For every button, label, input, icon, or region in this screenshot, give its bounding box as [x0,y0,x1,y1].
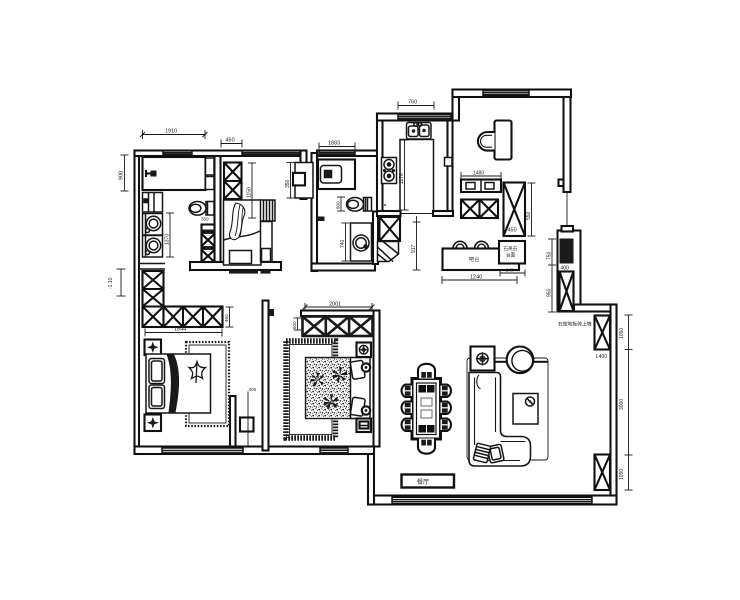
svg-text:1883: 1883 [328,141,340,147]
svg-text:1050: 1050 [619,328,625,339]
svg-text:450: 450 [508,228,517,234]
svg-text:1240: 1240 [470,275,482,281]
svg-text:369: 369 [201,217,209,222]
svg-text:台面: 台面 [506,252,516,259]
svg-text:800: 800 [336,201,341,209]
svg-text:400: 400 [249,387,257,392]
svg-text:1176: 1176 [399,173,405,184]
svg-text:3000: 3000 [619,399,625,410]
svg-text:350: 350 [285,179,291,188]
svg-text:餐厅: 餐厅 [417,478,429,486]
svg-text:吧台: 吧台 [469,255,479,263]
svg-text:460: 460 [226,138,235,144]
svg-text:1150: 1150 [247,187,253,198]
svg-text:石塑地板砖上墙: 石塑地板砖上墙 [558,321,592,328]
svg-text:950: 950 [547,288,553,297]
svg-text:2001: 2001 [329,302,341,308]
svg-text:240: 240 [506,268,514,273]
svg-text:1050: 1050 [619,469,625,480]
svg-text:550: 550 [526,211,532,220]
svg-text:1370: 1370 [165,234,171,245]
svg-text:750: 750 [547,251,553,260]
svg-text:-1.10: -1.10 [108,277,114,289]
svg-text:1844: 1844 [174,327,186,333]
svg-text:917: 917 [411,244,417,253]
svg-text:L400: L400 [596,354,607,360]
svg-text:740: 740 [340,239,346,248]
svg-text:760: 760 [408,100,417,106]
svg-text:1480: 1480 [473,171,484,177]
svg-text:900: 900 [119,171,125,180]
svg-text:460: 460 [224,314,229,322]
svg-text:石英石: 石英石 [504,245,518,252]
svg-text:600: 600 [292,321,297,329]
svg-text:1910: 1910 [165,129,177,135]
